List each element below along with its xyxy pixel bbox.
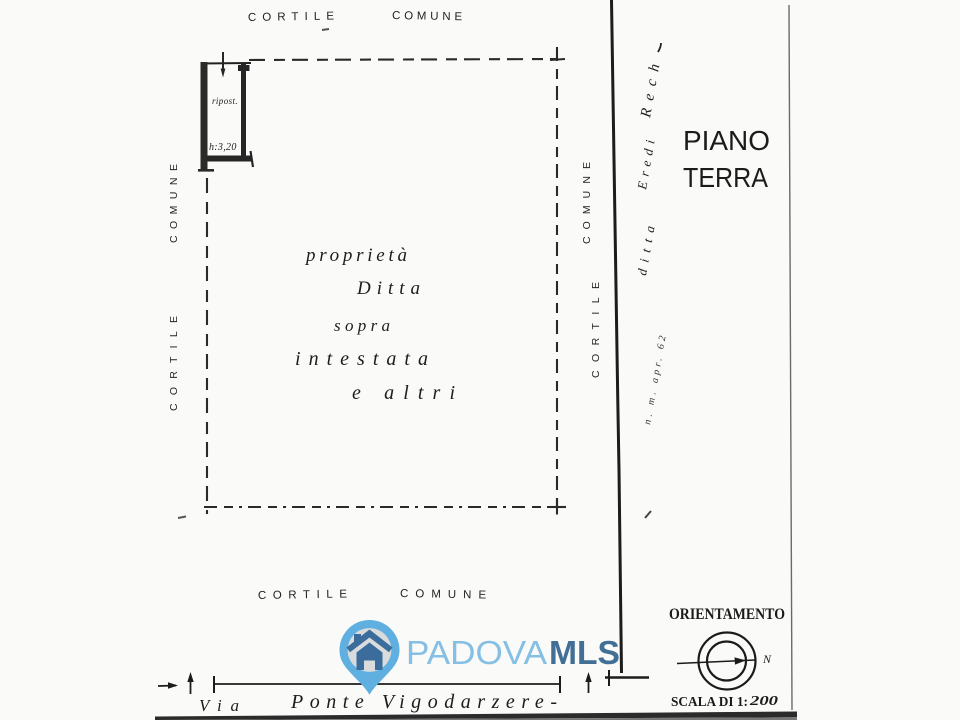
svg-text:SCALA DI 1:: SCALA DI 1: bbox=[671, 694, 748, 709]
svg-text:TERRA: TERRA bbox=[683, 162, 768, 193]
svg-text:200: 200 bbox=[749, 694, 778, 709]
svg-text:ripost.: ripost. bbox=[212, 96, 238, 106]
svg-text:Via: Via bbox=[199, 696, 239, 715]
svg-text:MLS: MLS bbox=[549, 634, 620, 671]
svg-text:N: N bbox=[762, 652, 772, 666]
svg-text:proprietà: proprietà bbox=[304, 245, 407, 266]
svg-text:Ditta: Ditta bbox=[356, 278, 420, 299]
svg-text:ORIENTAMENTO: ORIENTAMENTO bbox=[669, 606, 785, 623]
svg-text:intestata: intestata bbox=[295, 348, 428, 370]
svg-text:PIANO: PIANO bbox=[683, 125, 770, 156]
svg-text:h:3,20: h:3,20 bbox=[209, 142, 237, 153]
svg-text:PADOVA: PADOVA bbox=[406, 634, 547, 671]
